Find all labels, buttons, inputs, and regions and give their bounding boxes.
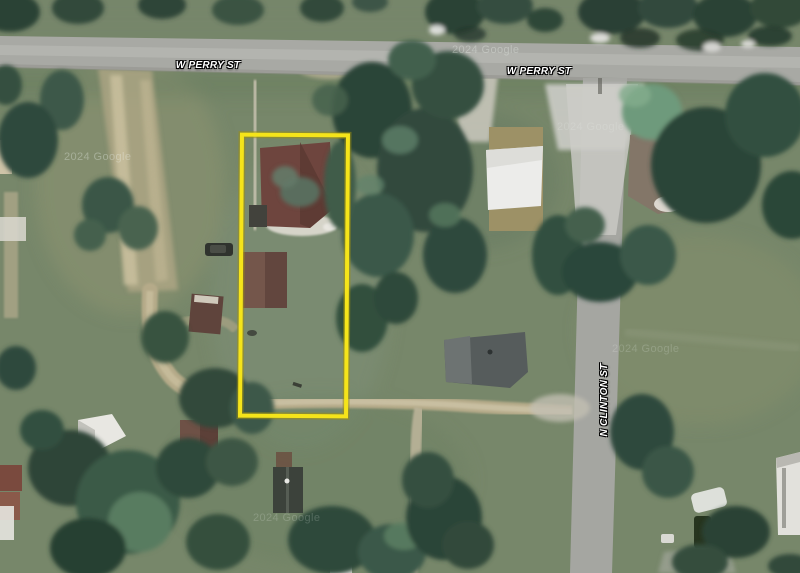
satellite-imagery (0, 0, 800, 573)
west-shed (188, 294, 223, 335)
watermark-google: 2024 Google (452, 44, 519, 56)
parcel-second-house-roof (243, 252, 287, 308)
street-label-n-clinton: N CLINTON ST (598, 363, 610, 436)
watermark-google: 2024 Google (557, 121, 624, 133)
right-edge-house (776, 452, 800, 535)
watermark-google: 2024 Google (612, 343, 679, 355)
small-white-object (661, 534, 674, 543)
slate-roof-house (444, 332, 528, 388)
watermark-google: 2024 Google (253, 512, 320, 524)
white-roof-building (486, 127, 543, 231)
watermark-google: 2024 Google (64, 151, 131, 163)
parcel-shed (249, 205, 267, 227)
satellite-map-viewport[interactable]: W PERRY ST W PERRY ST N CLINTON ST 2024 … (0, 0, 800, 573)
street-label-w-perry-west: W PERRY ST (176, 59, 241, 71)
street-label-w-perry-east: W PERRY ST (507, 65, 572, 77)
dark-car (205, 243, 233, 256)
